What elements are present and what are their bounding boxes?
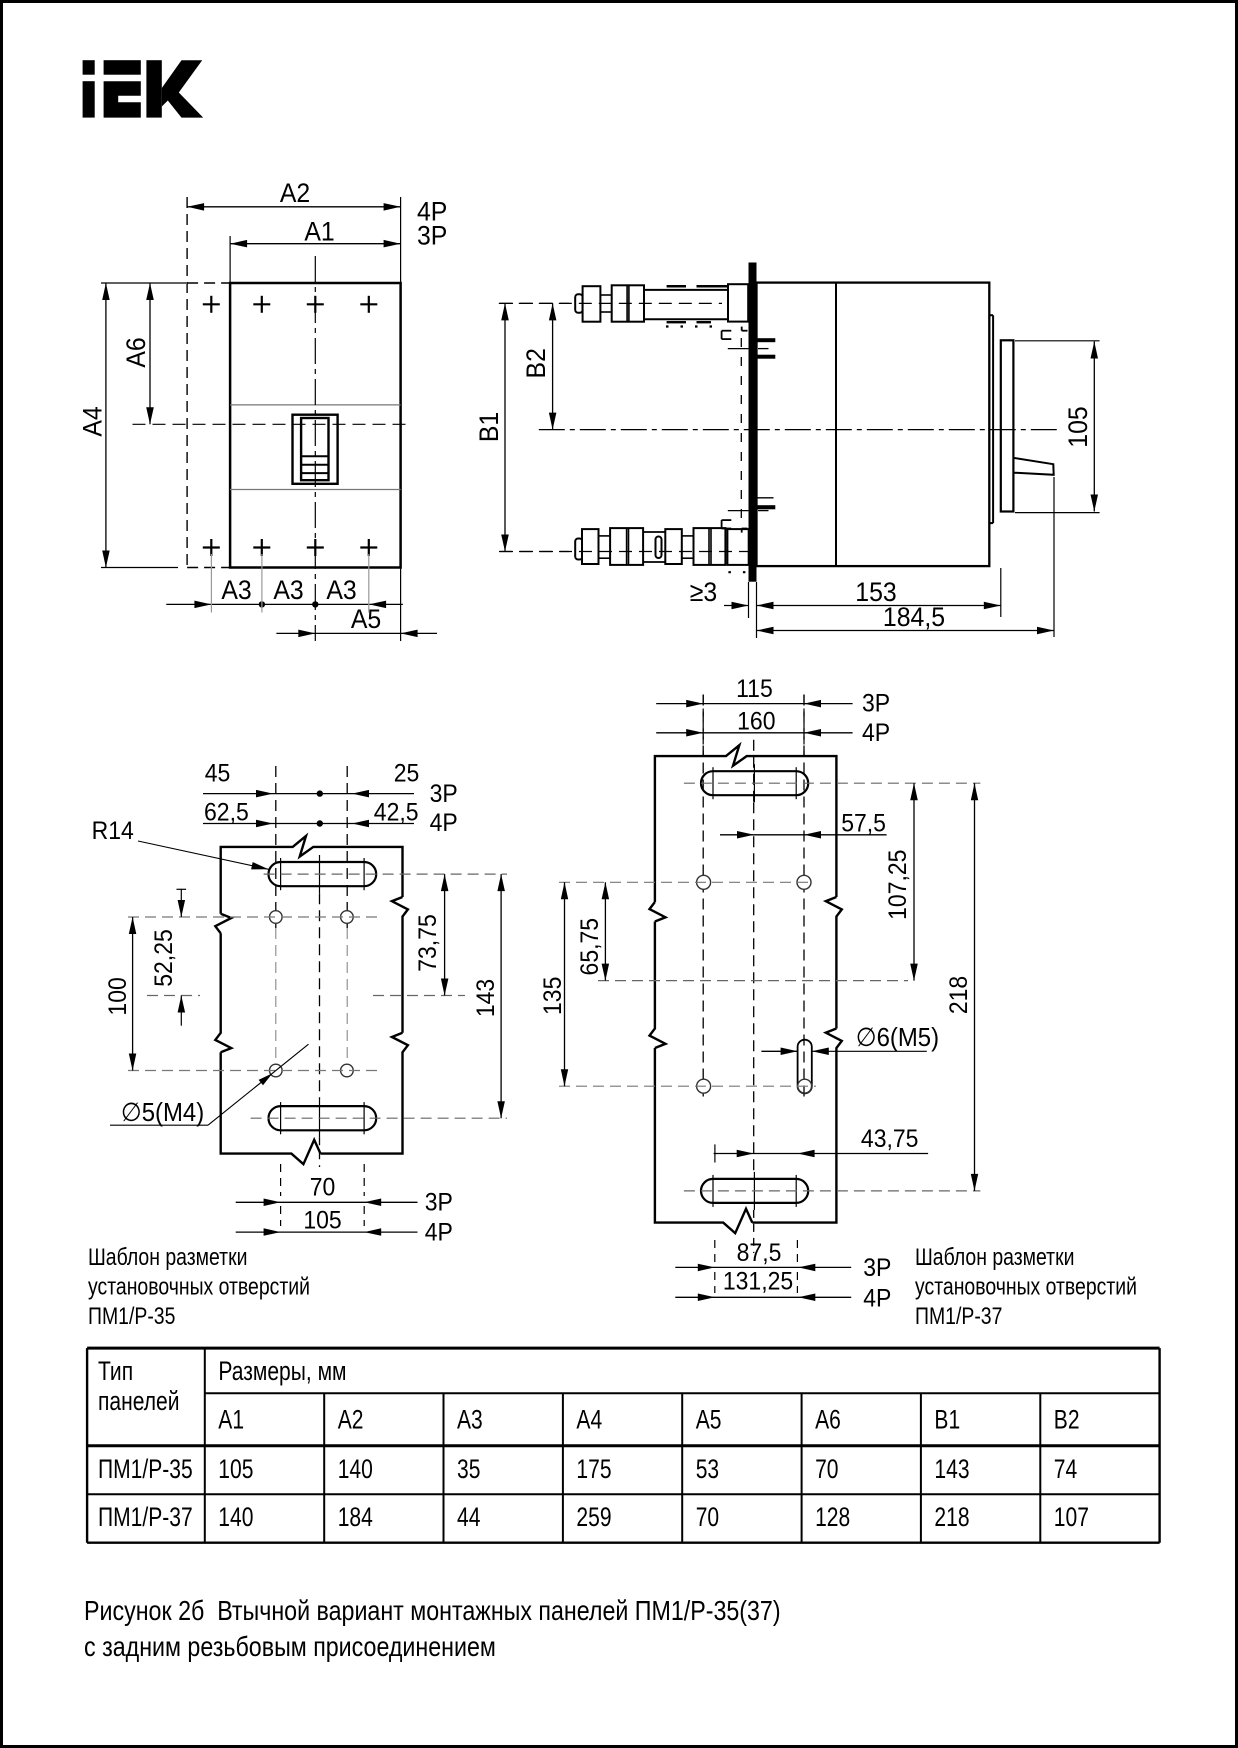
svg-text:∅5(M4): ∅5(M4) [121,1098,204,1127]
svg-text:105: 105 [303,1207,341,1235]
svg-text:74: 74 [1054,1455,1077,1485]
svg-text:105: 105 [1064,406,1093,447]
svg-text:ПМ1/Р-35: ПМ1/Р-35 [88,1302,175,1329]
svg-text:140: 140 [218,1503,253,1533]
svg-text:панелей: панелей [98,1387,180,1417]
svg-text:A2: A2 [338,1405,364,1435]
svg-text:160: 160 [737,708,775,736]
svg-text:87,5: 87,5 [737,1239,782,1267]
svg-text:105: 105 [218,1455,253,1485]
svg-text:65,75: 65,75 [576,918,604,976]
svg-text:Размеры, мм: Размеры, мм [218,1357,346,1387]
svg-text:Рисунок 2б Втычной вариант мо: Рисунок 2б Втычной вариант монтажных пан… [84,1596,781,1626]
svg-text:ПМ1/Р-35: ПМ1/Р-35 [98,1455,193,1485]
svg-text:128: 128 [815,1503,850,1533]
svg-text:B2: B2 [522,348,551,378]
svg-text:107,25: 107,25 [884,850,912,920]
svg-text:4P: 4P [425,1219,453,1247]
svg-text:3P: 3P [430,780,458,808]
svg-text:70: 70 [310,1174,336,1202]
svg-text:установочных отверстий: установочных отверстий [88,1273,310,1300]
svg-text:3P: 3P [862,689,890,717]
svg-text:218: 218 [945,976,973,1014]
svg-text:ПМ1/Р-37: ПМ1/Р-37 [98,1503,193,1533]
svg-text:115: 115 [736,675,773,703]
svg-text:184: 184 [338,1503,373,1533]
svg-text:3P: 3P [863,1254,891,1282]
svg-text:A4: A4 [576,1405,602,1435]
svg-text:установочных отверстий: установочных отверстий [915,1273,1137,1300]
svg-text:Шаблон разметки: Шаблон разметки [915,1243,1074,1270]
svg-text:A1: A1 [218,1405,244,1435]
svg-text:A3: A3 [273,576,303,605]
svg-text:70: 70 [815,1455,838,1485]
svg-text:∅6(M5): ∅6(M5) [856,1023,939,1052]
svg-text:42,5: 42,5 [374,798,419,826]
svg-text:Шаблон разметки: Шаблон разметки [88,1243,247,1270]
svg-text:52,25: 52,25 [150,929,178,987]
svg-text:A5: A5 [351,605,381,634]
svg-text:143: 143 [934,1455,969,1485]
svg-text:143: 143 [472,979,500,1017]
svg-text:53: 53 [696,1455,719,1485]
svg-text:135: 135 [539,977,567,1015]
svg-text:A3: A3 [221,576,251,605]
svg-text:A3: A3 [457,1405,483,1435]
svg-text:140: 140 [338,1455,373,1485]
svg-text:Тип: Тип [98,1357,133,1387]
svg-text:3P: 3P [417,222,447,251]
svg-text:A3: A3 [326,576,356,605]
svg-text:107: 107 [1054,1503,1089,1533]
svg-text:ПМ1/Р-37: ПМ1/Р-37 [915,1302,1002,1329]
svg-text:35: 35 [457,1455,480,1485]
svg-text:A6: A6 [815,1405,841,1435]
svg-text:с задним резьбовым присоединен: с задним резьбовым присоединением [84,1632,496,1662]
svg-text:25: 25 [394,760,420,788]
svg-text:131,25: 131,25 [723,1268,793,1296]
svg-text:A4: A4 [79,406,108,436]
svg-text:B2: B2 [1054,1405,1080,1435]
svg-text:3P: 3P [425,1188,453,1216]
svg-text:≥3: ≥3 [690,578,717,607]
svg-text:57,5: 57,5 [841,809,886,837]
svg-text:4P: 4P [430,809,458,837]
svg-text:44: 44 [457,1503,480,1533]
svg-text:45: 45 [205,760,231,788]
svg-text:B1: B1 [934,1405,960,1435]
svg-text:A2: A2 [280,179,310,208]
svg-text:4P: 4P [863,1285,891,1313]
svg-text:73,75: 73,75 [414,914,442,972]
svg-text:R14: R14 [92,817,134,845]
svg-text:A6: A6 [122,337,151,367]
svg-text:4P: 4P [862,719,890,747]
svg-text:A1: A1 [304,218,334,247]
svg-text:62,5: 62,5 [204,798,249,826]
svg-text:175: 175 [576,1455,611,1485]
svg-text:218: 218 [934,1503,969,1533]
svg-text:B1: B1 [475,412,504,442]
svg-text:100: 100 [104,977,132,1015]
svg-text:184,5: 184,5 [883,603,945,632]
svg-text:43,75: 43,75 [861,1125,919,1153]
svg-text:A5: A5 [696,1405,722,1435]
svg-text:70: 70 [696,1503,719,1533]
svg-text:259: 259 [576,1503,611,1533]
